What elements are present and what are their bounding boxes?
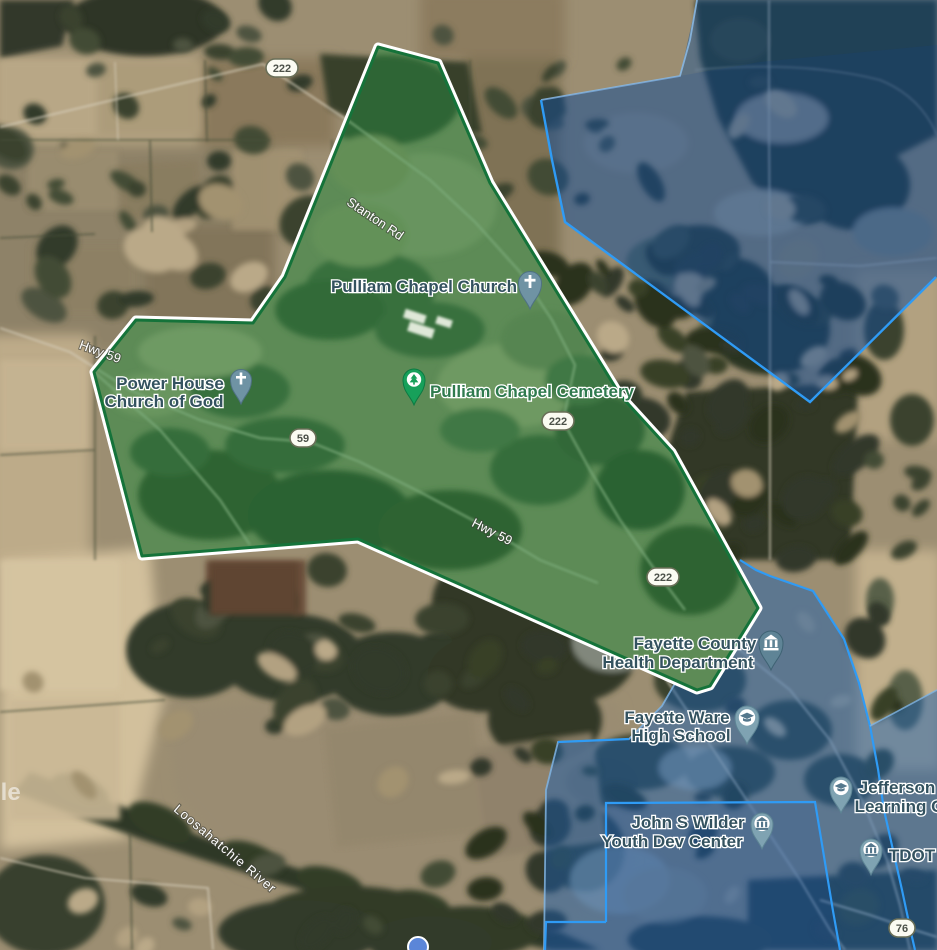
- svg-text:Pulliam Chapel Cemetery: Pulliam Chapel Cemetery: [430, 382, 635, 401]
- svg-text:222: 222: [549, 416, 567, 428]
- svg-text:Pulliam Chapel Church: Pulliam Chapel Church: [331, 277, 517, 296]
- svg-text:Fayette Ware: Fayette Ware: [624, 708, 729, 727]
- svg-text:222: 222: [273, 63, 291, 75]
- svg-text:Health Department: Health Department: [602, 653, 753, 672]
- svg-text:TDOT: TDOT: [889, 846, 936, 865]
- svg-text:Learning C: Learning C: [855, 797, 937, 816]
- svg-text:222: 222: [654, 572, 672, 584]
- svg-text:Power House: Power House: [116, 374, 224, 393]
- svg-text:Church of God: Church of God: [105, 392, 224, 411]
- svg-text:gle: gle: [0, 779, 21, 806]
- svg-text:John S Wilder: John S Wilder: [631, 813, 745, 832]
- svg-text:Youth Dev Center: Youth Dev Center: [601, 832, 743, 851]
- svg-text:59: 59: [297, 433, 309, 445]
- svg-text:Fayette County: Fayette County: [634, 634, 757, 653]
- svg-text:High School: High School: [631, 726, 730, 745]
- svg-text:Jefferson: Jefferson: [859, 778, 936, 797]
- svg-text:76: 76: [896, 923, 908, 935]
